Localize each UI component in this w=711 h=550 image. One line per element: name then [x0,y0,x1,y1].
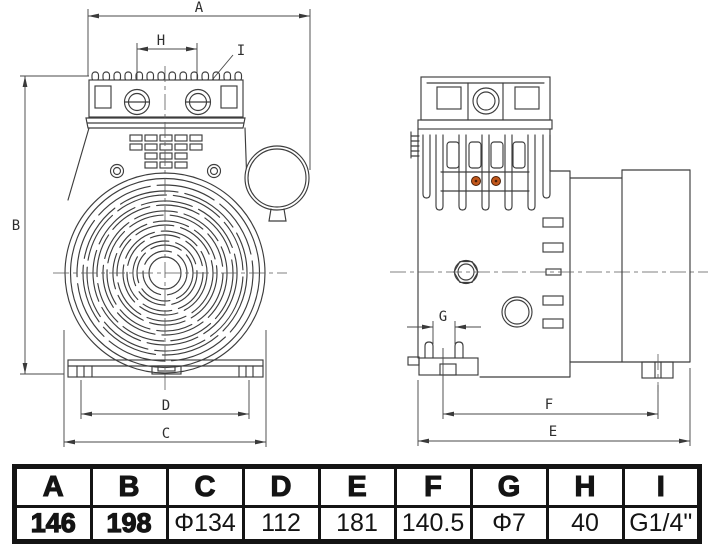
dim-label-e: E [549,424,557,440]
table-header-b: B [91,467,167,507]
port-right [186,90,211,115]
base-front [68,360,263,377]
table-header-h: H [547,467,623,507]
table-value-b: 198 [91,507,167,542]
table-header-f: F [395,467,471,507]
dim-label-f: F [545,397,553,413]
side-vents [543,218,563,328]
table-value-a: 146 [15,507,91,542]
foot-front-left [77,366,92,377]
table-header-i: I [623,467,699,507]
dimension-table-value-row: 146 198 Φ134 112 181 140.5 Φ7 40 G1/4" [15,507,699,542]
table-value-i: G1/4" [623,507,699,542]
front-view: A H I B D [12,0,310,447]
foot-prong-right [455,342,463,358]
table-value-f: 140.5 [395,507,471,542]
port-left [125,90,150,115]
table-value-g: Φ7 [471,507,547,542]
dimension-table: A B C D E F G H I 146 198 Φ134 112 181 1… [13,465,701,543]
cooling-fins-side [411,132,550,210]
foot-prong-left [425,342,433,358]
table-value-d: 112 [243,507,319,542]
dimension-table-header-row: A B C D E F G H I [15,467,699,507]
dim-label-d: D [162,398,170,414]
indicator-dot-left [472,177,481,186]
indicator-dot-right [492,177,501,186]
pump-body-side [390,129,708,377]
table-header-a: A [15,467,91,507]
vent-grille [130,135,202,168]
head-band-side [418,120,552,129]
capacitor-tab [269,209,286,221]
motor-foot [642,354,673,392]
dim-label-g: G [439,309,447,325]
dimension-f: F [443,348,658,419]
motor-housing [570,170,690,392]
capacitor [245,146,309,221]
dim-label-c: C [162,426,170,442]
table-header-g: G [471,467,547,507]
technical-drawing-page: A H I B D [0,0,711,550]
table-value-c: Φ134 [167,507,243,542]
table-value-h: 40 [547,507,623,542]
screw-hole-left [111,165,124,178]
pump-head-side [418,77,552,129]
head-block-front [89,80,243,117]
dim-label-i: I [237,43,245,59]
pump-drawing-svg: A H I B D [0,0,711,462]
dim-label-h: H [157,33,165,49]
pump-head-front [86,72,245,128]
dimension-e: E [418,368,690,446]
side-view: G F E [390,77,708,446]
table-value-e: 181 [319,507,395,542]
table-header-c: C [167,467,243,507]
dim-label-b: B [12,218,20,234]
table-header-d: D [243,467,319,507]
dim-label-a: A [195,0,204,16]
fin-slots [447,142,525,168]
round-hole [502,297,532,327]
table-header-e: E [319,467,395,507]
foot-tab [408,357,419,365]
screw-hole-right [208,165,221,178]
body-edge-left [68,128,89,200]
foot-front-right [239,366,253,377]
